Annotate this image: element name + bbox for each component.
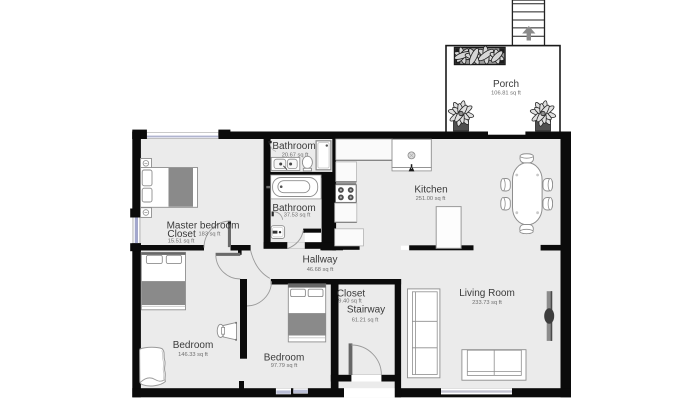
- svg-text:15.51 sq ft: 15.51 sq ft: [168, 239, 195, 245]
- svg-text:106.81 sq ft: 106.81 sq ft: [491, 91, 521, 97]
- svg-text:20.67 sq ft: 20.67 sq ft: [282, 152, 309, 158]
- svg-text:Hallway: Hallway: [302, 255, 337, 266]
- svg-text:Bedroom: Bedroom: [173, 340, 214, 351]
- svg-text:46.68 sq ft: 46.68 sq ft: [307, 267, 334, 273]
- svg-text:Kitchen: Kitchen: [414, 185, 447, 196]
- svg-text:146.33 sq ft: 146.33 sq ft: [178, 352, 208, 358]
- svg-text:251.00 sq ft: 251.00 sq ft: [416, 196, 446, 202]
- svg-text:Bathroom: Bathroom: [272, 141, 315, 152]
- svg-text:233.73 sq ft: 233.73 sq ft: [472, 300, 502, 306]
- svg-text:37.53 sq ft: 37.53 sq ft: [284, 213, 311, 219]
- svg-text:183 sq ft: 183 sq ft: [199, 231, 221, 237]
- svg-text:61.21 sq ft: 61.21 sq ft: [352, 317, 379, 323]
- svg-text:Living Room: Living Room: [459, 288, 515, 299]
- svg-text:97.79 sq ft: 97.79 sq ft: [271, 363, 298, 369]
- svg-text:Stairway: Stairway: [347, 305, 385, 316]
- svg-text:Porch: Porch: [493, 79, 519, 90]
